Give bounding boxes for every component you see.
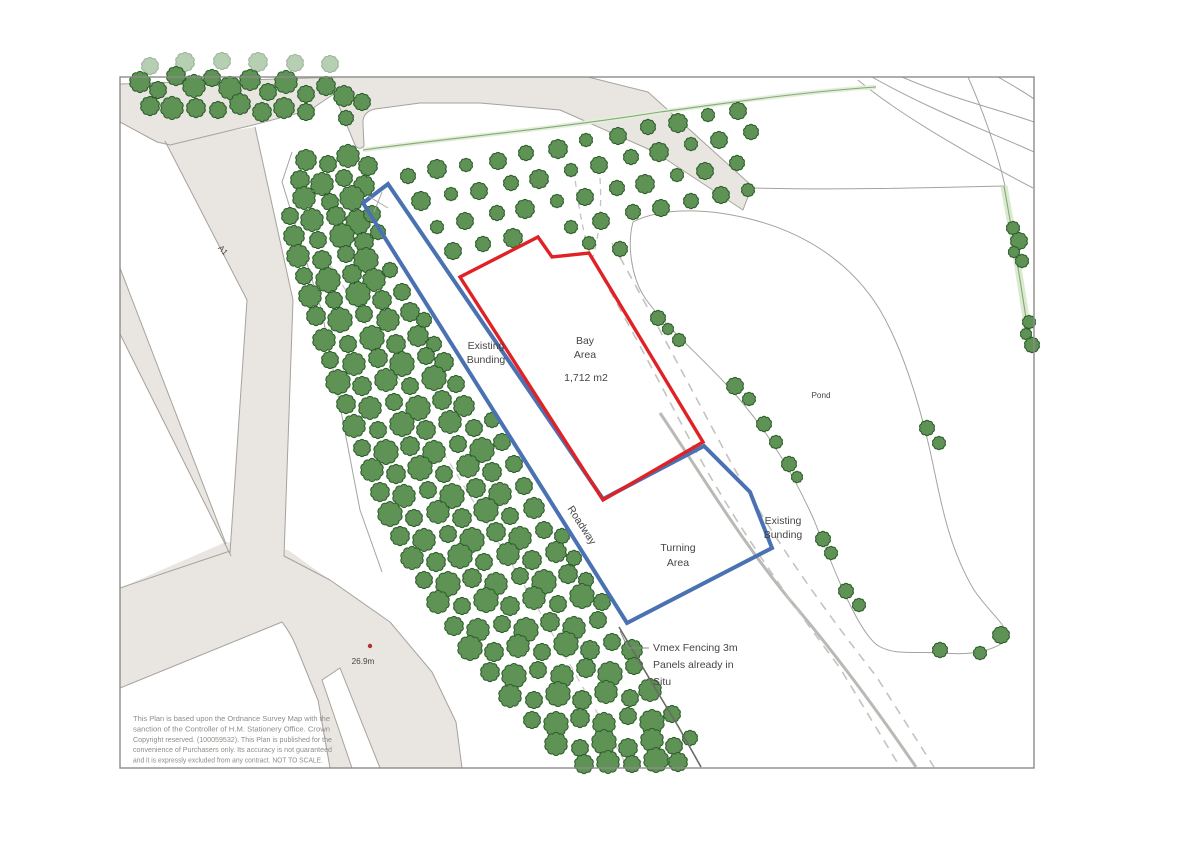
- tree-icon: [346, 281, 370, 306]
- tree-icon: [730, 102, 747, 119]
- tree-icon: [530, 169, 549, 188]
- tree-icon: [624, 149, 639, 164]
- tree-icon: [418, 347, 435, 364]
- tree-icon: [299, 284, 321, 307]
- tree-icon: [474, 497, 498, 522]
- tree-icon: [445, 616, 464, 635]
- tree-icon: [444, 187, 457, 200]
- tree-icon: [501, 596, 520, 615]
- tree-icon: [626, 204, 641, 219]
- tree-icon: [620, 707, 637, 724]
- tree-icon: [526, 691, 543, 708]
- turning-area-label: Turning: [660, 542, 695, 554]
- tree-icon: [711, 131, 728, 148]
- tree-icon: [541, 612, 560, 631]
- existing-bunding-right-label: Existing: [765, 515, 802, 527]
- tree-icon: [287, 244, 309, 267]
- tree-icon: [593, 212, 610, 229]
- tree-icon: [427, 552, 446, 571]
- tree-icon: [427, 590, 449, 613]
- tree-icon: [408, 455, 432, 480]
- tree-icon: [524, 497, 544, 518]
- existing-bunding-left-label: Existing: [468, 340, 505, 352]
- tree-icon: [307, 306, 326, 325]
- tree-icon: [622, 689, 639, 706]
- tree-icon: [575, 754, 594, 773]
- tree-icon: [530, 661, 547, 678]
- fencing-label: Vmex Fencing 3m: [653, 642, 738, 654]
- tree-icon: [326, 291, 343, 308]
- tree-icon: [454, 597, 471, 614]
- tree-icon: [391, 526, 410, 545]
- tree-icon: [502, 663, 526, 688]
- tree-icon: [450, 435, 467, 452]
- tree-icon: [662, 323, 673, 335]
- tree-icon: [636, 174, 655, 193]
- tree-icon: [597, 750, 619, 773]
- tree-icon: [577, 188, 594, 205]
- tree-icon: [360, 325, 384, 350]
- tree-icon: [408, 325, 428, 346]
- tree-icon: [150, 81, 167, 98]
- tree-icon: [187, 98, 206, 117]
- fencing-label: Situ: [653, 676, 671, 688]
- tree-icon: [457, 212, 474, 229]
- tree-icon: [387, 334, 406, 353]
- tree-icon: [481, 662, 500, 681]
- tree-icon: [183, 74, 205, 97]
- tree-icon: [564, 163, 577, 176]
- tree-icon: [577, 658, 596, 677]
- tree-icon: [523, 550, 542, 569]
- tree-icon: [933, 642, 948, 657]
- tree-icon: [672, 333, 685, 346]
- tree-icon: [730, 155, 745, 170]
- tree-icon: [483, 462, 502, 481]
- tree-icon: [504, 175, 519, 190]
- tree-icon: [287, 54, 304, 71]
- tree-icon: [463, 568, 482, 587]
- tree-icon: [337, 144, 359, 167]
- tree-icon: [316, 267, 340, 292]
- site-plan-map: A1 Existing Bunding Bay Area 1,712 m2 Ro…: [0, 0, 1200, 848]
- tree-icon: [684, 193, 699, 208]
- tree-icon: [516, 199, 535, 218]
- tree-icon: [334, 85, 354, 106]
- tree-icon: [428, 159, 447, 178]
- trees-pond-bund: [651, 310, 1010, 659]
- tree-icon: [249, 52, 268, 71]
- tree-icon: [604, 633, 621, 650]
- tree-icon: [471, 182, 488, 199]
- tree-icon: [839, 583, 854, 598]
- tree-icon: [579, 133, 592, 146]
- tree-icon: [401, 546, 423, 569]
- tree-icon: [499, 684, 521, 707]
- existing-bunding-left-label: Bunding: [467, 354, 506, 366]
- tree-icon: [336, 169, 353, 186]
- tree-icon: [546, 541, 566, 562]
- tree-icon: [852, 598, 865, 611]
- tree-icon: [564, 220, 577, 233]
- tree-icon: [993, 626, 1010, 643]
- tree-icon: [554, 631, 578, 656]
- tree-icon: [275, 70, 297, 93]
- tree-icon: [932, 436, 945, 449]
- tree-icon: [327, 206, 346, 225]
- tree-icon: [613, 241, 628, 256]
- tree-icon: [130, 71, 150, 92]
- tree-icon: [490, 205, 505, 220]
- tree-icon: [573, 690, 592, 709]
- spot-height-marker: [368, 644, 372, 648]
- tree-icon: [416, 571, 433, 588]
- tree-icon: [394, 283, 411, 300]
- tree-icon: [550, 595, 567, 612]
- tree-icon: [592, 729, 616, 754]
- tree-icon: [260, 83, 277, 100]
- tree-icon: [240, 69, 260, 90]
- tree-icon: [430, 220, 443, 233]
- tree-icon: [476, 553, 493, 570]
- tree-icon: [485, 642, 504, 661]
- tree-icon: [487, 522, 506, 541]
- tree-icon: [567, 550, 582, 565]
- site-plan-page: { "plan": { "labels": { "road_a1": "A1",…: [0, 0, 1200, 848]
- tree-icon: [727, 377, 744, 394]
- tree-icon: [610, 127, 627, 144]
- tree-icon: [769, 435, 782, 448]
- tree-icon: [420, 481, 437, 498]
- tree-icon: [641, 728, 663, 751]
- tree-icon: [337, 394, 356, 413]
- tree-icon: [519, 145, 534, 160]
- tree-icon: [669, 113, 688, 132]
- tree-icon: [534, 643, 551, 660]
- tree-icon: [284, 225, 304, 246]
- tree-icon: [782, 456, 797, 471]
- tree-icon: [467, 478, 486, 497]
- disclaimer-block: This Plan is based upon the Ordnance Sur…: [133, 714, 332, 765]
- tree-icon: [570, 583, 594, 608]
- tree-icon: [422, 365, 446, 390]
- tree-icon: [406, 509, 423, 526]
- tree-icon: [340, 185, 364, 210]
- tree-icon: [641, 119, 656, 134]
- tree-icon: [161, 96, 183, 119]
- tree-icon: [322, 55, 339, 72]
- tree-icon: [458, 635, 482, 660]
- tree-icon: [502, 507, 519, 524]
- tree-icon: [459, 158, 472, 171]
- tree-icon: [701, 108, 714, 121]
- tree-icon: [582, 236, 595, 249]
- tree-icon: [274, 97, 294, 118]
- tree-icon: [330, 223, 354, 248]
- tree-icon: [373, 290, 392, 309]
- tree-icon: [356, 305, 373, 322]
- tree-icon: [650, 142, 669, 161]
- tree-icon: [619, 738, 638, 757]
- tree-icon: [301, 208, 323, 231]
- tree-icon: [390, 411, 414, 436]
- disclaimer-line: convenience of Purchasers only. Its accu…: [133, 745, 332, 754]
- tree-icon: [791, 471, 802, 483]
- tree-icon: [353, 376, 372, 395]
- road-a1-carriageway: [165, 127, 293, 556]
- tree-icon: [666, 737, 683, 754]
- existing-bunding-right-label: Bunding: [764, 529, 803, 541]
- tree-icon: [516, 477, 533, 494]
- tree-icon: [310, 231, 327, 248]
- disclaimer-line: This Plan is based upon the Ordnance Sur…: [133, 714, 330, 723]
- tree-icon: [401, 168, 416, 183]
- pond-outline: [630, 211, 1008, 654]
- tree-icon: [433, 390, 452, 409]
- disclaimer-line: and it is expressly excluded from any co…: [133, 756, 323, 765]
- tree-icon: [523, 586, 545, 609]
- tree-icon: [445, 242, 462, 259]
- tree-icon: [210, 101, 227, 118]
- tree-icon: [436, 465, 453, 482]
- tree-icon: [713, 186, 730, 203]
- tree-icon: [141, 96, 160, 115]
- tree-icon: [512, 567, 529, 584]
- tree-icon: [214, 52, 231, 69]
- tree-icon: [204, 69, 221, 86]
- tree-icon: [591, 156, 608, 173]
- tree-icon: [973, 646, 986, 659]
- tree-icon: [298, 103, 315, 120]
- tree-icon: [383, 262, 398, 277]
- tree-icon: [427, 500, 449, 523]
- tree-icon: [457, 454, 479, 477]
- tree-icon: [448, 543, 472, 568]
- tree-icon: [476, 236, 491, 251]
- tree-icon: [291, 170, 310, 189]
- tree-icon: [610, 180, 625, 195]
- tree-icon: [371, 482, 390, 501]
- tree-icon: [571, 708, 590, 727]
- bay-area-boundary-line-red: [460, 237, 703, 500]
- tree-icon: [572, 739, 589, 756]
- tree-icon: [412, 191, 431, 210]
- tree-icon: [453, 508, 472, 527]
- tree-icon: [744, 124, 759, 139]
- tree-icon: [507, 634, 529, 657]
- tree-icon: [370, 421, 387, 438]
- tree-icon: [697, 162, 714, 179]
- tree-icon: [670, 168, 683, 181]
- tree-icon: [417, 420, 436, 439]
- tree-icon: [328, 307, 352, 332]
- tree-icon: [624, 755, 641, 772]
- tree-icon: [142, 57, 159, 74]
- tree-icon: [466, 419, 483, 436]
- tree-icon: [440, 525, 457, 542]
- spot-height-label: 26.9m: [352, 657, 375, 666]
- bay-area-label: Area: [574, 349, 596, 361]
- tree-icon: [550, 194, 563, 207]
- tree-icon: [359, 396, 381, 419]
- tree-icon: [253, 102, 272, 121]
- tree-icon: [559, 564, 578, 583]
- tree-icon: [343, 264, 362, 283]
- tree-icon: [387, 464, 406, 483]
- tree-icon: [338, 245, 355, 262]
- tree-icon: [313, 250, 332, 269]
- fencing-label: Panels already in: [653, 659, 734, 671]
- bay-area-label: Bay: [576, 335, 595, 347]
- tree-icon: [644, 747, 668, 772]
- tree-icon: [311, 172, 333, 195]
- tree-icon: [757, 416, 772, 431]
- tree-icon: [474, 587, 498, 612]
- tree-icon: [340, 335, 357, 352]
- tree-icon: [322, 351, 339, 368]
- tree-icon: [361, 458, 383, 481]
- tree-icon: [326, 369, 350, 394]
- tree-icon: [653, 199, 670, 216]
- tree-icon: [626, 657, 643, 674]
- tree-icon: [684, 137, 697, 150]
- tree-icon: [354, 439, 371, 456]
- tree-icon: [439, 410, 461, 433]
- turning-area-label: Area: [667, 557, 689, 569]
- disclaimer-line: sanction of the Controller of H.M. Stati…: [133, 724, 330, 733]
- tree-icon: [402, 377, 419, 394]
- tree-icon: [293, 186, 315, 209]
- roadway-label: Roadway: [565, 504, 599, 548]
- tree-icon: [595, 680, 617, 703]
- tree-icon: [669, 752, 688, 771]
- tree-icon: [742, 392, 755, 405]
- tree-icon: [494, 615, 511, 632]
- tree-icon: [375, 368, 397, 391]
- tree-icon: [920, 420, 935, 435]
- pond-label: Pond: [811, 391, 831, 400]
- tree-icon: [313, 328, 335, 351]
- tree-icon: [298, 85, 315, 102]
- tree-icon: [320, 155, 337, 172]
- tree-icon: [343, 414, 365, 437]
- tree-icon: [545, 732, 567, 755]
- tree-icon: [1025, 337, 1040, 352]
- tree-icon: [296, 149, 316, 170]
- tree-icon: [448, 375, 465, 392]
- tree-icon: [824, 546, 837, 559]
- tree-icon: [369, 348, 388, 367]
- tree-icon: [490, 152, 507, 169]
- tree-icon: [1015, 254, 1028, 267]
- tree-icon: [816, 531, 831, 546]
- tree-icon: [354, 93, 371, 110]
- tree-icon: [296, 267, 313, 284]
- tree-icon: [524, 711, 541, 728]
- tree-icon: [339, 110, 354, 125]
- disclaimer-line: Copyright reserved. (100059532). This Pl…: [133, 735, 332, 744]
- tree-icon: [506, 455, 523, 472]
- tree-icon: [536, 521, 553, 538]
- tree-icon: [282, 207, 299, 224]
- tree-icon: [401, 436, 420, 455]
- tree-icon: [546, 681, 570, 706]
- tree-icon: [386, 393, 403, 410]
- tree-icon: [359, 156, 378, 175]
- bay-area-value-label: 1,712 m2: [564, 372, 608, 384]
- tree-icon: [651, 310, 666, 325]
- tree-icon: [549, 139, 568, 158]
- tree-icon: [317, 76, 336, 95]
- tree-icon: [741, 183, 754, 196]
- tree-icon: [581, 640, 600, 659]
- tree-icon: [497, 542, 519, 565]
- tree-icon: [590, 611, 607, 628]
- tree-icon: [230, 93, 250, 114]
- tree-icon: [378, 501, 402, 526]
